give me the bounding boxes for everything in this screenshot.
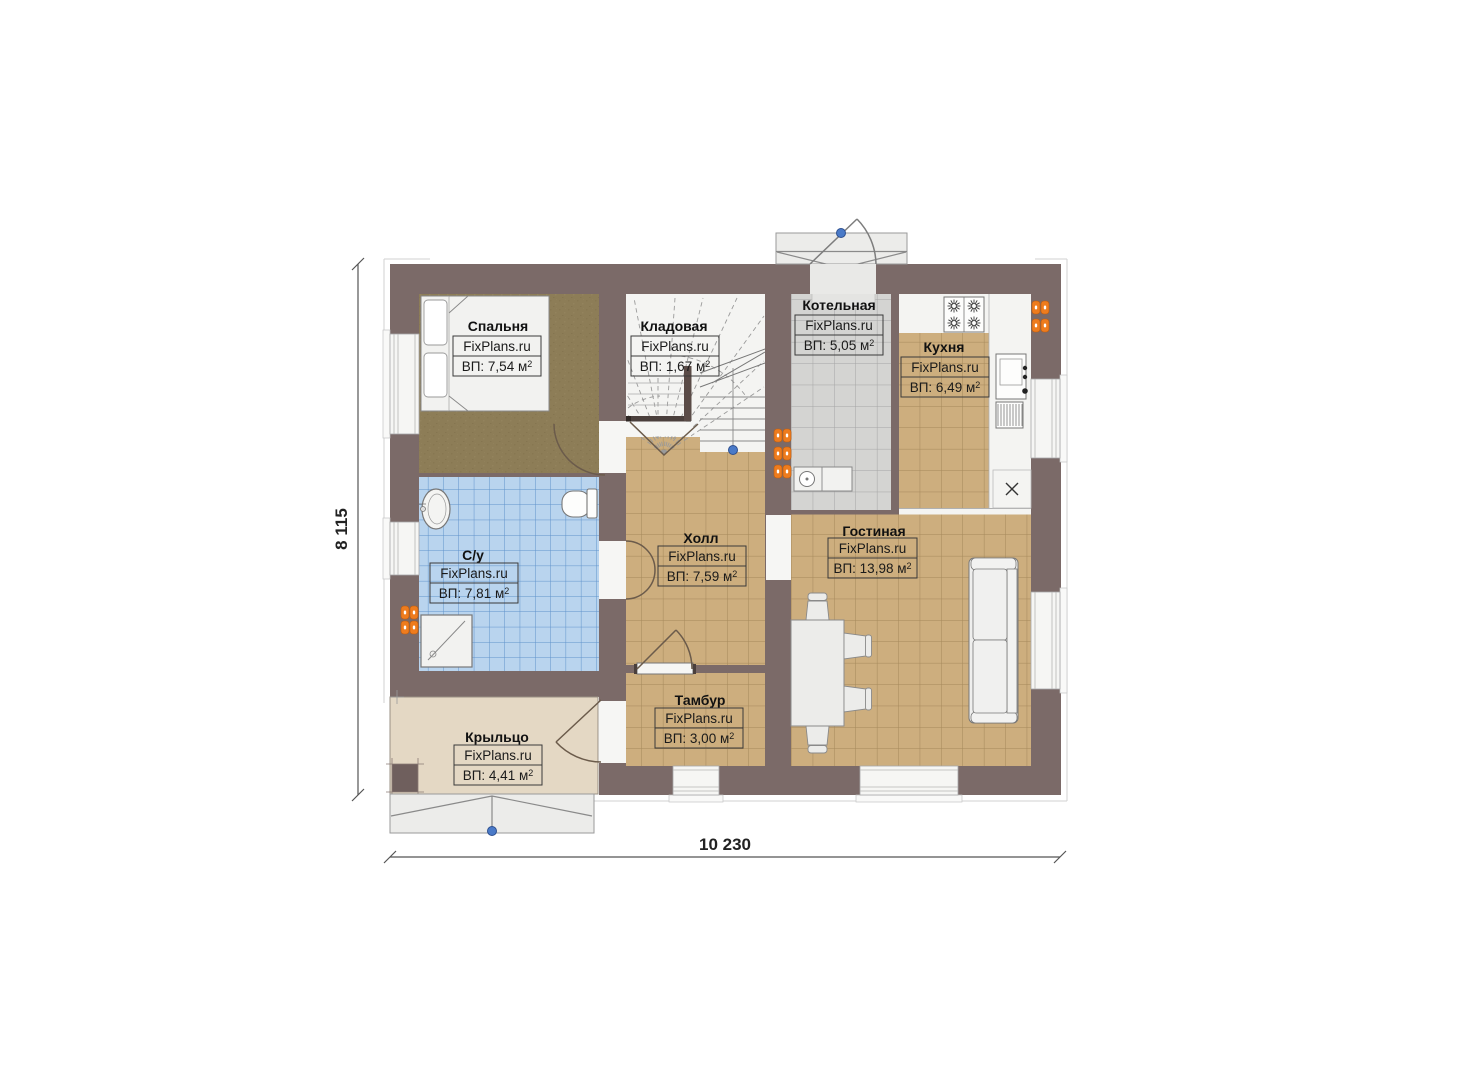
svg-text:FixPlans.ru: FixPlans.ru [668,549,736,564]
svg-text:Холл: Холл [683,530,718,546]
svg-text:FixPlans.ru: FixPlans.ru [805,318,873,333]
svg-text:Крыльцо: Крыльцо [465,729,529,745]
svg-text:ВП: 7,59 м2: ВП: 7,59 м2 [667,569,738,584]
svg-text:Кухня: Кухня [924,339,965,355]
svg-text:ВП: 3,00 м2: ВП: 3,00 м2 [664,731,735,746]
svg-text:FixPlans.ru: FixPlans.ru [665,711,733,726]
svg-text:FixPlans.ru: FixPlans.ru [839,541,907,556]
svg-text:FixPlans.ru: FixPlans.ru [463,339,531,354]
svg-text:Гостиная: Гостиная [842,523,905,539]
svg-text:ВП: 7,54 м2: ВП: 7,54 м2 [462,359,533,374]
svg-text:Кладовая: Кладовая [640,318,707,334]
svg-text:ВП: 7,81 м2: ВП: 7,81 м2 [439,586,510,601]
svg-text:Спальня: Спальня [468,318,528,334]
svg-text:ВП: 4,41 м2: ВП: 4,41 м2 [463,768,534,783]
svg-text:FixPlans.ru: FixPlans.ru [440,566,508,581]
svg-text:ВП: 1,67 м2: ВП: 1,67 м2 [640,359,711,374]
svg-text:ВП: 5,05 м2: ВП: 5,05 м2 [804,338,875,353]
svg-text:Тамбур: Тамбур [675,692,726,708]
svg-text:FixPlans.ru: FixPlans.ru [911,360,979,375]
svg-text:10 230: 10 230 [699,835,751,854]
svg-text:С/у: С/у [462,547,484,563]
svg-text:ВП: 13,98 м2: ВП: 13,98 м2 [833,561,911,576]
svg-text:FixPlans.ru: FixPlans.ru [464,748,532,763]
svg-text:8 115: 8 115 [332,508,351,550]
svg-text:ВП: 6,49 м2: ВП: 6,49 м2 [910,380,981,395]
svg-text:Котельная: Котельная [802,297,875,313]
svg-text:FixPlans.ru: FixPlans.ru [641,339,709,354]
